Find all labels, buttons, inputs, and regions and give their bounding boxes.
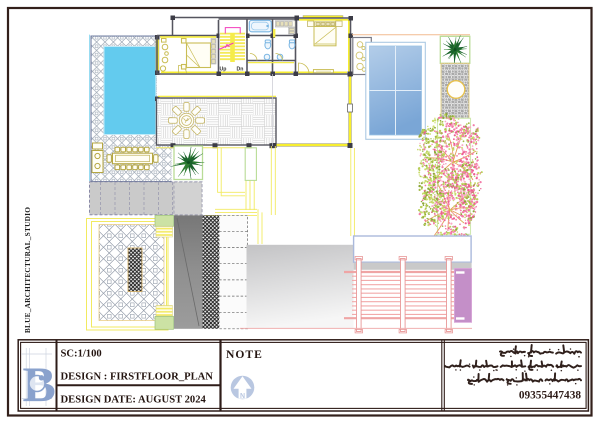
- svg-text:DESIGN DATE: AUGUST 2024: DESIGN DATE: AUGUST 2024: [61, 395, 207, 406]
- svg-text:N: N: [240, 393, 245, 400]
- svg-text:DESIGN : FIRSTFLOOR_PLAN: DESIGN : FIRSTFLOOR_PLAN: [61, 372, 214, 383]
- svg-text:NOTE: NOTE: [226, 348, 263, 361]
- svg-text:Dn: Dn: [237, 67, 244, 73]
- svg-text:Up: Up: [220, 67, 227, 73]
- svg-text:BLUE_ARCHITECTURAL_STUDIO: BLUE_ARCHITECTURAL_STUDIO: [23, 207, 32, 333]
- svg-text:09355447438: 09355447438: [519, 390, 581, 402]
- svg-text:SC:1/100: SC:1/100: [61, 349, 102, 360]
